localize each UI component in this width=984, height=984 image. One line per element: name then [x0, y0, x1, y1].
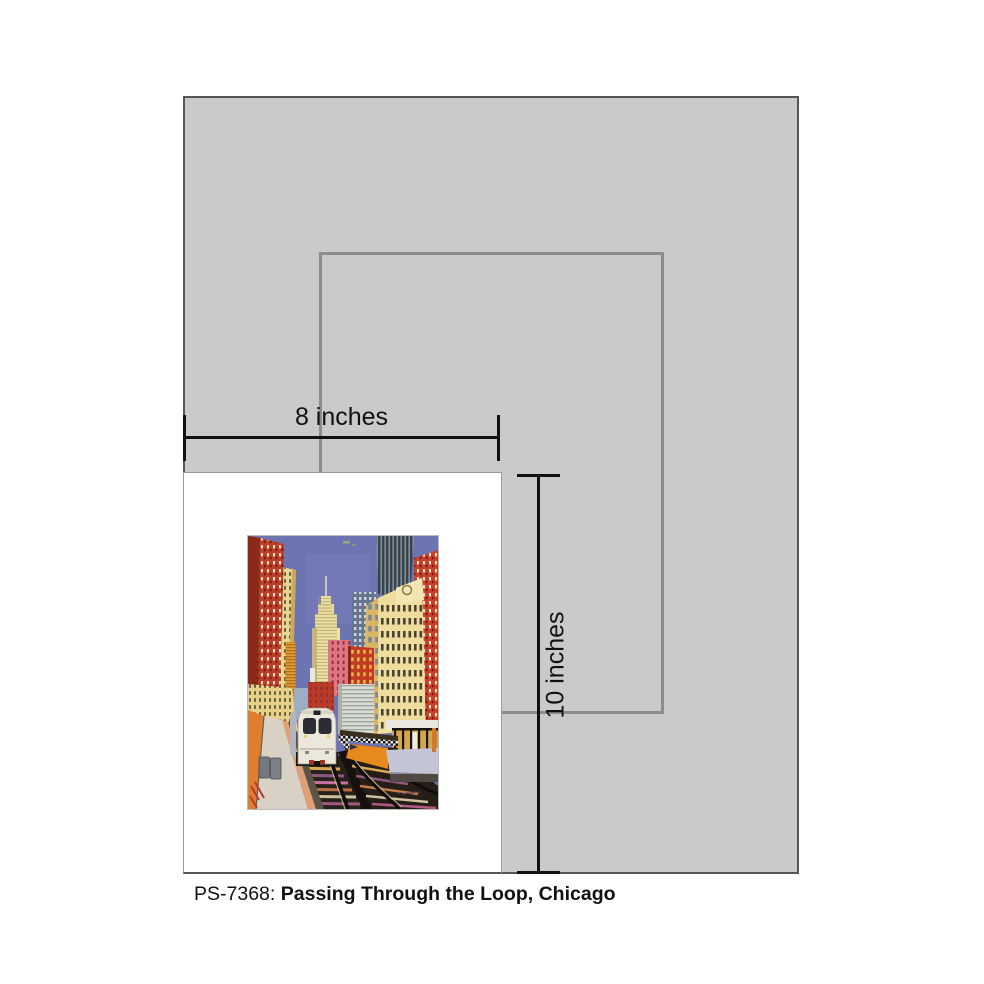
- gray-floors-building: [338, 684, 374, 734]
- width-dimension-line: [183, 436, 500, 439]
- width-dimension-label: 8 inches: [183, 404, 500, 432]
- height-dimension-tick-bottom: [517, 871, 560, 874]
- caption-product-code: PS-7368:: [194, 883, 275, 905]
- height-dimension-line: [537, 475, 540, 874]
- caption: PS-7368:Passing Through the Loop, Chicag…: [194, 883, 616, 905]
- caption-title: Passing Through the Loop, Chicago: [281, 883, 616, 905]
- print-8x10: [183, 472, 502, 874]
- artwork-painting: [248, 536, 438, 809]
- height-dimension-label: 10 inches: [542, 611, 570, 718]
- height-dimension-tick-top: [517, 474, 560, 477]
